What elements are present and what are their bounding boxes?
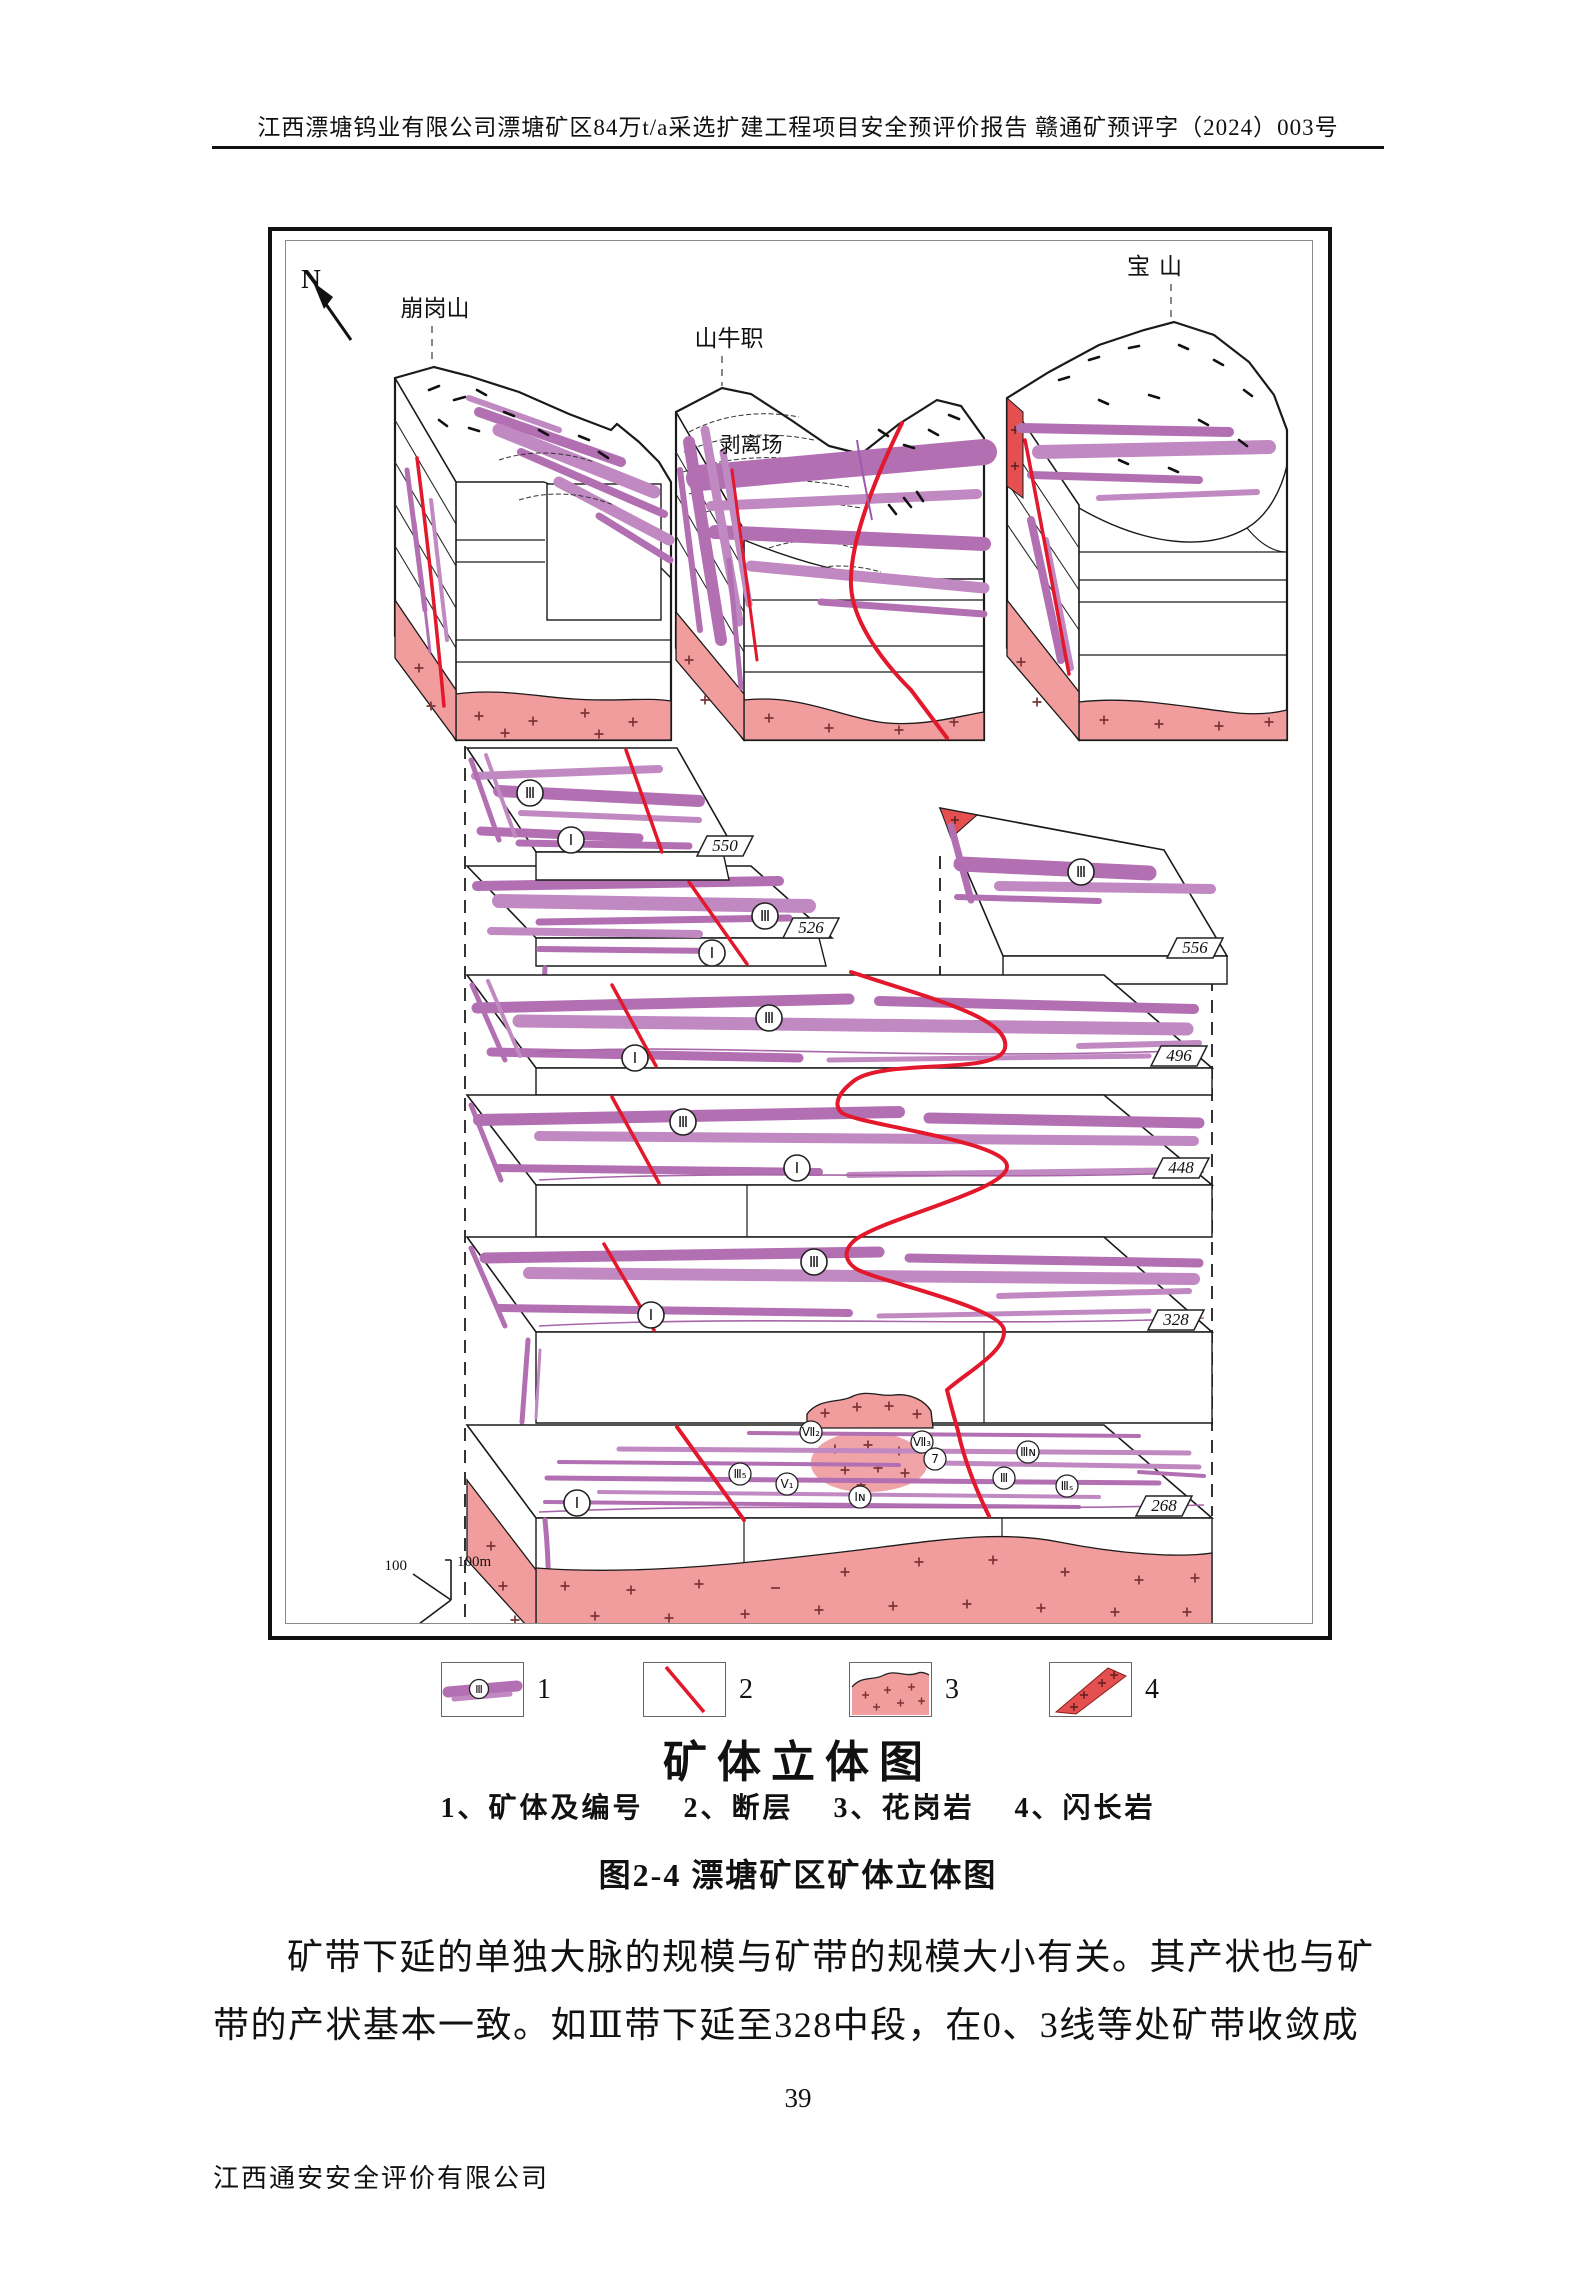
level-tag-526: 526: [783, 918, 839, 938]
vein-circle-268-III5: Ⅲ₅: [729, 1463, 751, 1485]
scale-100-left: 100: [385, 1558, 408, 1574]
svg-text:Ⅲ₅: Ⅲ₅: [733, 1467, 746, 1481]
level-block-556: Ⅲ 556: [940, 808, 1227, 984]
vein-circle-268-VII2: Ⅶ₂: [800, 1421, 822, 1443]
svg-text:Ⅰ: Ⅰ: [649, 1306, 653, 1324]
svg-text:Ⅲ: Ⅲ: [678, 1113, 688, 1131]
baoshan-label: 宝山: [1127, 254, 1191, 279]
vein-circle-268-V1: Ⅴ₁: [776, 1473, 798, 1495]
mountain-block-baoshan: [1007, 322, 1287, 740]
svg-text:Ⅰ: Ⅰ: [575, 1494, 579, 1512]
level-tag-328: 328: [1148, 1310, 1204, 1330]
svg-text:526: 526: [798, 918, 824, 937]
page-header: 江西漂塘钨业有限公司漂塘矿区84万t/a采选扩建工程项目安全预评价报告 赣通矿预…: [0, 108, 1596, 142]
scale-100m: 100m: [457, 1554, 492, 1570]
mountain-block-benggangshan: [395, 367, 671, 740]
vein-circle-328-I: Ⅰ: [638, 1302, 664, 1328]
level-tag-496: 496: [1151, 1046, 1207, 1066]
vein-circle-328-III: Ⅲ: [801, 1249, 827, 1275]
level-tag-556: 556: [1167, 938, 1223, 958]
vein-circle-496-I: Ⅰ: [622, 1045, 648, 1071]
body-paragraph-line2: 带的产状基本一致。如Ⅲ带下延至328中段，在0、3线等处矿带收敛成: [213, 1996, 1385, 2048]
svg-text:268: 268: [1151, 1496, 1177, 1515]
svg-text:448: 448: [1168, 1158, 1194, 1177]
svg-text:Ⅲ: Ⅲ: [809, 1253, 819, 1271]
svg-text:556: 556: [1182, 938, 1208, 957]
legend-swatch-granite: [849, 1662, 932, 1717]
vein-circle-550-III: Ⅲ: [517, 780, 543, 806]
legend-swatch-orebody: Ⅲ: [441, 1662, 524, 1717]
legend-num-1: 1: [537, 1674, 551, 1706]
vein-circle-268-IIIS: Ⅲₛ: [1056, 1475, 1078, 1497]
level-tag-550: 550: [697, 836, 753, 856]
legend-num-4: 4: [1145, 1674, 1159, 1706]
figure-inner-border: N: [285, 240, 1313, 1624]
svg-text:Ⅲ: Ⅲ: [760, 907, 770, 925]
vein-circle-268-I: Ⅰ: [564, 1490, 590, 1516]
page-footer: 江西通安安全评价有限公司: [213, 2158, 549, 2195]
svg-text:Ⅶ₃: Ⅶ₃: [913, 1435, 931, 1449]
svg-text:Ⅲ: Ⅲ: [1000, 1471, 1008, 1485]
vein-circle-448-III: Ⅲ: [670, 1109, 696, 1135]
vein-circle-448-I: Ⅰ: [784, 1155, 810, 1181]
level-slab-328: Ⅲ Ⅰ 328: [467, 1237, 1212, 1423]
figure-frame: N: [268, 227, 1332, 1640]
svg-text:496: 496: [1166, 1046, 1192, 1065]
report-page: 江西漂塘钨业有限公司漂塘矿区84万t/a采选扩建工程项目安全预评价报告 赣通矿预…: [0, 0, 1596, 2269]
svg-text:Ⅲ: Ⅲ: [1076, 863, 1086, 881]
body-paragraph-line1: 矿带下延的单独大脉的规模与矿带的规模大小有关。其产状也与矿: [213, 1928, 1459, 1980]
vein-circle-496-III: Ⅲ: [756, 1005, 782, 1031]
figure-title: 矿体立体图: [0, 1726, 1596, 1790]
header-rule: [212, 146, 1384, 149]
benggangshan-label: 崩岗山: [401, 296, 470, 321]
svg-text:Ⅰ: Ⅰ: [569, 831, 573, 849]
stripping-site-label: 剥离场: [720, 433, 783, 457]
svg-text:Ⅲₛ: Ⅲₛ: [1061, 1479, 1074, 1493]
svg-text:328: 328: [1162, 1310, 1189, 1329]
legend-swatch-diorite: [1049, 1662, 1132, 1717]
vein-circle-556-III: Ⅲ: [1068, 859, 1094, 885]
svg-text:Ⅰ: Ⅰ: [710, 944, 714, 962]
vein-circle-268-III: Ⅲ: [993, 1467, 1015, 1489]
vein-circle-550-I: Ⅰ: [558, 827, 584, 853]
svg-text:Ⅴ₁: Ⅴ₁: [780, 1477, 793, 1491]
level-slab-496: Ⅲ Ⅰ 496: [467, 975, 1212, 1095]
level-slab-550: Ⅲ Ⅰ 550: [467, 748, 753, 880]
level-tag-448: 448: [1153, 1158, 1209, 1178]
svg-text:Ⅲ: Ⅲ: [475, 1683, 483, 1696]
figure-caption: 图2-4 漂塘矿区矿体立体图: [0, 1850, 1596, 1896]
svg-text:Ⅰɴ: Ⅰɴ: [854, 1490, 865, 1504]
shanniuzhi-label: 山牛职: [695, 326, 764, 351]
scale-100-bottom: 100: [425, 1622, 448, 1623]
vein-circle-268-IIIN: Ⅲɴ: [1017, 1441, 1039, 1463]
north-arrow: N: [301, 264, 351, 340]
legend-swatch-fault: [643, 1662, 726, 1717]
svg-text:7: 7: [931, 1452, 939, 1466]
level-tag-268: 268: [1136, 1496, 1192, 1516]
svg-text:Ⅲ: Ⅲ: [764, 1009, 774, 1027]
vein-circle-526-III: Ⅲ: [752, 903, 778, 929]
svg-text:Ⅰ: Ⅰ: [795, 1159, 799, 1177]
vein-circle-268-IN: Ⅰɴ: [849, 1486, 871, 1508]
legend-text-line: 1、矿体及编号 2、断层 3、花岗岩 4、闪长岩: [0, 1786, 1596, 1826]
geology-3d-diagram: N: [286, 241, 1312, 1623]
svg-text:Ⅶ₂: Ⅶ₂: [802, 1425, 820, 1439]
svg-text:Ⅲɴ: Ⅲɴ: [1020, 1445, 1036, 1459]
page-number: 39: [0, 2083, 1596, 2114]
mountain-block-shanniuzhi: 剥离场: [676, 388, 984, 740]
legend-num-3: 3: [945, 1674, 959, 1706]
svg-text:Ⅰ: Ⅰ: [633, 1049, 637, 1067]
level-slab-448: Ⅲ Ⅰ 448: [467, 1095, 1212, 1237]
vein-circle-268-7: 7: [924, 1448, 946, 1470]
svg-text:Ⅲ: Ⅲ: [525, 784, 535, 802]
svg-text:550: 550: [712, 836, 738, 855]
legend-num-2: 2: [739, 1674, 753, 1706]
scale-bar: 100 100m 100: [385, 1554, 492, 1623]
vein-circle-526-I: Ⅰ: [699, 940, 725, 966]
